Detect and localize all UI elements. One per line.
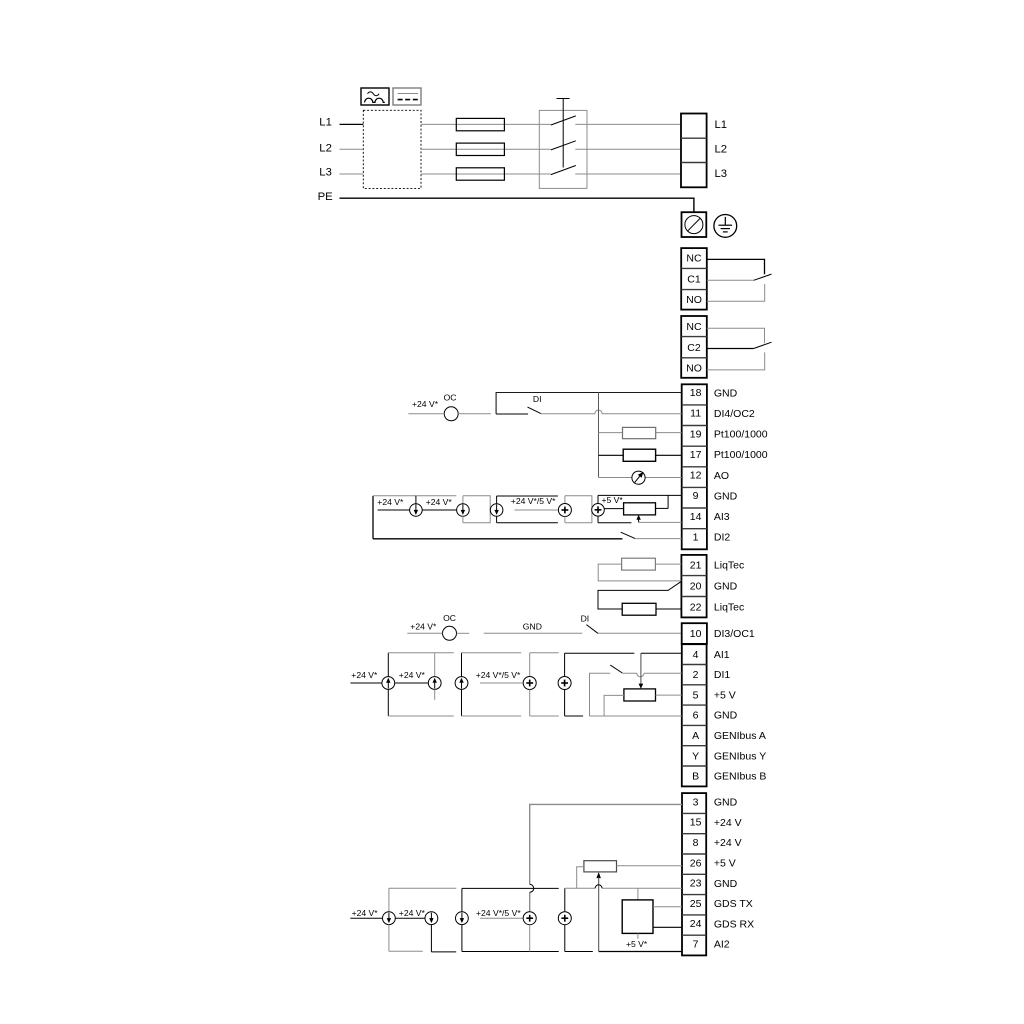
svg-text:DI4/OC2: DI4/OC2	[714, 408, 755, 420]
svg-text:GDS TX: GDS TX	[714, 898, 753, 910]
svg-text:6: 6	[693, 710, 699, 722]
svg-text:+24 V*: +24 V*	[410, 621, 437, 631]
svg-text:+24 V: +24 V	[714, 817, 742, 829]
svg-text:26: 26	[690, 857, 702, 869]
svg-text:3: 3	[693, 796, 699, 808]
svg-text:GND: GND	[523, 621, 542, 631]
svg-text:+24 V*: +24 V*	[352, 908, 379, 918]
svg-text:DI: DI	[581, 614, 590, 624]
svg-text:21: 21	[690, 560, 702, 572]
svg-text:C2: C2	[687, 342, 701, 354]
svg-text:GENIbus B: GENIbus B	[714, 771, 767, 783]
svg-text:+5 V: +5 V	[714, 858, 736, 870]
svg-text:12: 12	[690, 470, 702, 482]
svg-text:10: 10	[690, 628, 702, 640]
svg-text:+24 V*/5 V*: +24 V*/5 V*	[476, 908, 521, 918]
svg-text:1: 1	[693, 531, 699, 543]
svg-text:DI3/OC1: DI3/OC1	[714, 628, 755, 640]
svg-text:AI2: AI2	[714, 939, 730, 951]
svg-text:17: 17	[690, 449, 702, 461]
svg-text:GND: GND	[714, 710, 738, 722]
svg-text:C1: C1	[687, 274, 701, 286]
svg-text:+24 V*: +24 V*	[377, 497, 404, 507]
svg-text:GENIbus A: GENIbus A	[714, 730, 766, 742]
svg-text:+24 V*/5 V*: +24 V*/5 V*	[476, 670, 521, 680]
svg-text:GENIbus Y: GENIbus Y	[714, 750, 766, 762]
svg-text:Pt100/1000: Pt100/1000	[714, 449, 768, 461]
svg-text:OC: OC	[444, 392, 457, 402]
svg-text:18: 18	[690, 387, 702, 399]
svg-text:GND: GND	[714, 797, 738, 809]
svg-text:5: 5	[693, 689, 699, 701]
svg-text:11: 11	[690, 408, 701, 420]
svg-text:+5 V: +5 V	[714, 689, 736, 701]
svg-text:8: 8	[693, 837, 699, 849]
svg-text:+5 V*: +5 V*	[602, 495, 624, 505]
svg-text:23: 23	[690, 878, 702, 890]
svg-text:19: 19	[690, 428, 702, 440]
svg-text:Y: Y	[692, 750, 699, 762]
svg-text:+24 V*/5 V*: +24 V*/5 V*	[511, 496, 556, 506]
svg-text:GND: GND	[714, 581, 738, 593]
svg-text:GND: GND	[714, 387, 738, 399]
svg-text:LiqTec: LiqTec	[714, 560, 744, 572]
svg-text:L2: L2	[319, 143, 332, 155]
svg-text:15: 15	[690, 817, 702, 829]
svg-text:L3: L3	[319, 166, 332, 178]
svg-text:B: B	[692, 771, 699, 783]
svg-text:L3: L3	[715, 168, 728, 180]
svg-text:7: 7	[693, 939, 699, 951]
svg-text:L2: L2	[715, 143, 728, 155]
svg-text:25: 25	[690, 898, 702, 910]
svg-text:AI3: AI3	[714, 511, 730, 523]
svg-text:20: 20	[690, 580, 702, 592]
svg-text:NC: NC	[686, 321, 702, 333]
svg-text:GDS RX: GDS RX	[714, 918, 754, 930]
svg-text:LiqTec: LiqTec	[714, 601, 744, 613]
svg-text:AO: AO	[714, 470, 729, 482]
svg-text:DI: DI	[533, 394, 542, 404]
svg-text:22: 22	[690, 601, 702, 613]
svg-text:DI1: DI1	[714, 669, 731, 681]
svg-text:+24 V: +24 V	[714, 837, 742, 849]
svg-text:Pt100/1000: Pt100/1000	[714, 429, 768, 441]
svg-text:GND: GND	[714, 491, 738, 503]
svg-text:+24 V*: +24 V*	[399, 908, 426, 918]
svg-text:9: 9	[693, 490, 699, 502]
svg-text:+24 V*: +24 V*	[399, 670, 426, 680]
svg-text:L1: L1	[715, 119, 728, 131]
svg-text:DI2: DI2	[714, 532, 731, 544]
svg-text:NC: NC	[686, 253, 702, 265]
svg-text:2: 2	[693, 669, 699, 681]
svg-text:NO: NO	[686, 294, 702, 306]
svg-text:4: 4	[693, 649, 699, 661]
svg-text:14: 14	[690, 511, 702, 523]
svg-text:L1: L1	[319, 116, 332, 128]
svg-text:PE: PE	[318, 191, 334, 203]
svg-text:OC: OC	[443, 613, 456, 623]
svg-text:AI1: AI1	[714, 649, 730, 661]
svg-text:GND: GND	[714, 878, 738, 890]
svg-text:+24 V*: +24 V*	[412, 399, 439, 409]
svg-text:+24 V*: +24 V*	[351, 670, 378, 680]
svg-text:A: A	[692, 730, 699, 742]
svg-text:24: 24	[690, 918, 702, 930]
svg-text:NO: NO	[686, 363, 702, 375]
svg-text:+5 V*: +5 V*	[626, 939, 648, 949]
svg-text:+24 V*: +24 V*	[426, 497, 453, 507]
